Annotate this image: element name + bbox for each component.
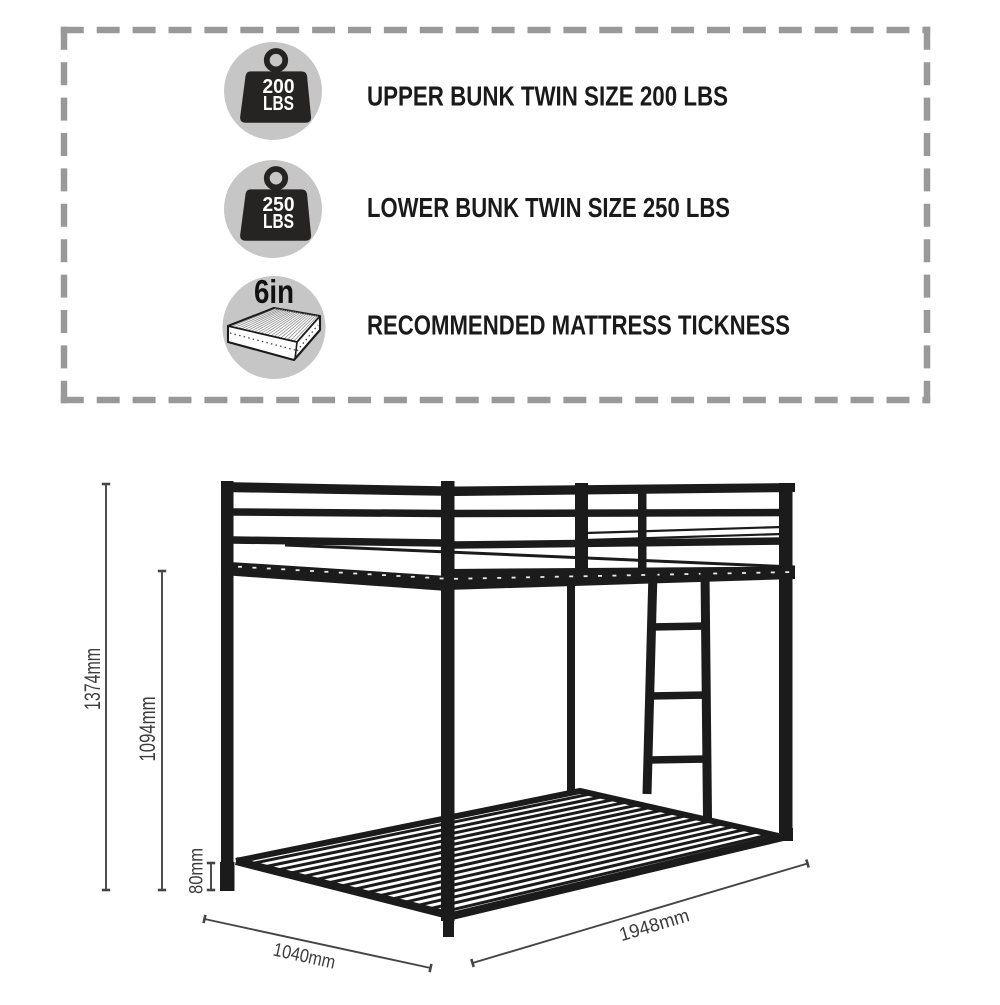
svg-text:6in: 6in (254, 273, 294, 310)
svg-text:UPPER BUNK TWIN SIZE 200 LBS: UPPER BUNK TWIN SIZE 200 LBS (367, 81, 728, 112)
svg-text:LBS: LBS (263, 92, 294, 115)
svg-text:1094mm: 1094mm (135, 697, 160, 762)
svg-text:RECOMMENDED MATTRESS TICKNESS: RECOMMENDED MATTRESS TICKNESS (367, 310, 790, 341)
svg-text:1374mm: 1374mm (80, 648, 105, 710)
svg-text:1948mm: 1948mm (617, 905, 692, 946)
svg-text:80mm: 80mm (186, 848, 208, 894)
svg-text:LBS: LBS (263, 210, 294, 233)
svg-text:LOWER BUNK TWIN SIZE 250 LBS: LOWER BUNK TWIN SIZE 250 LBS (367, 192, 730, 223)
